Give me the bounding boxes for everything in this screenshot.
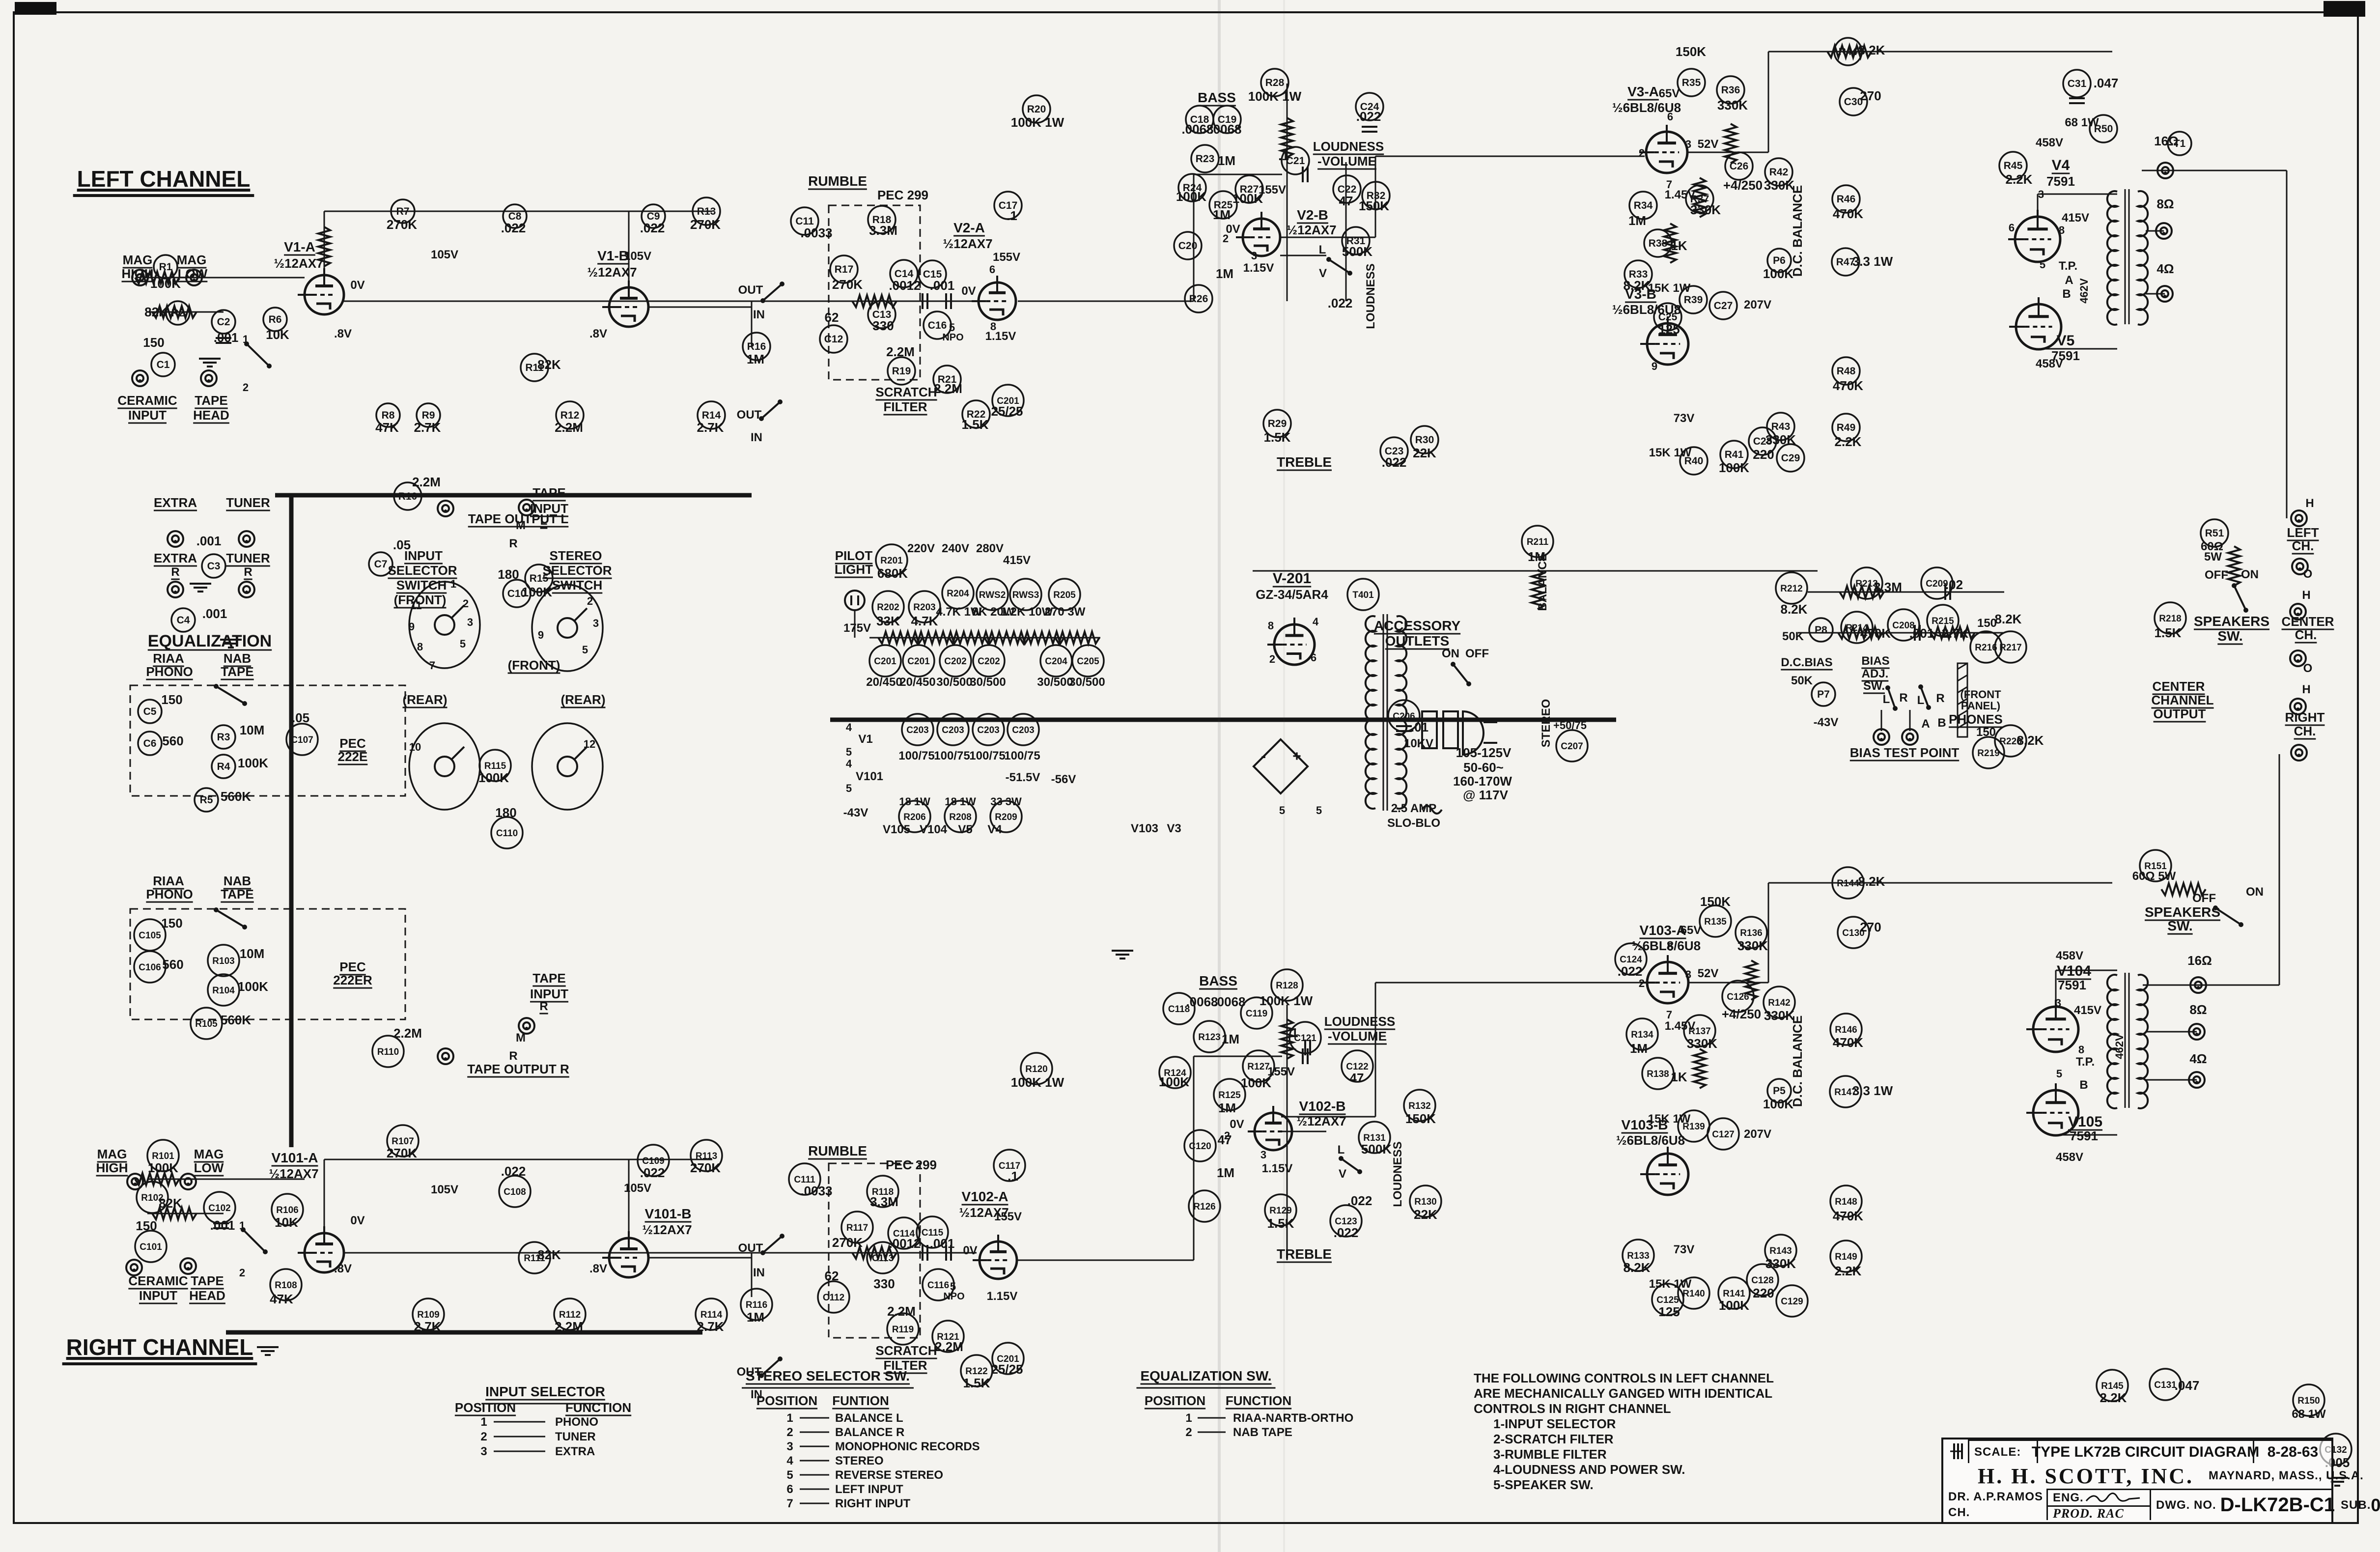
schematic-label: OUT <box>737 408 762 422</box>
legend-row-label: BALANCE L <box>835 1411 903 1425</box>
schematic-label: 160-170W <box>1453 774 1512 789</box>
component-ref: C3 <box>207 561 221 572</box>
component-ref: R111 <box>524 1253 545 1264</box>
component-ref: C114 <box>893 1229 915 1239</box>
legend-row-label: PHONO <box>555 1415 598 1429</box>
schematic-label: TUNER <box>226 495 270 510</box>
schematic-label: V1-A <box>284 239 315 254</box>
jack-symbol <box>2296 659 2299 662</box>
schematic-label: 0V <box>350 1214 364 1227</box>
tube-cathode <box>1660 992 1674 998</box>
legend-row-number: 7 <box>786 1497 793 1510</box>
jack-symbol <box>444 1057 447 1060</box>
schematic-label: .8V <box>589 327 607 340</box>
component-ref: C31 <box>2068 78 2087 89</box>
legend-header: FUNCTION <box>1226 1393 1291 1408</box>
jack-symbol <box>187 1267 190 1270</box>
legend-row-number: 2 <box>1185 1426 1192 1439</box>
schematic-label: .8V <box>589 1262 607 1275</box>
component-ref: C28 <box>1753 436 1772 447</box>
component-ref: R209 <box>995 812 1017 822</box>
component-ref: C122 <box>1346 1062 1368 1072</box>
legend-row-number: 6 <box>786 1483 793 1496</box>
component-ref: C201 <box>997 396 1019 406</box>
component-ref: C205 <box>1077 656 1099 667</box>
tube-cathode <box>2030 250 2044 255</box>
selector-rotor-arm <box>451 605 464 618</box>
legend-row-label: STEREO <box>835 1454 884 1467</box>
engineer-signature <box>2084 1491 2143 1505</box>
schematic-label: LOUDNESS <box>1364 263 1377 329</box>
schematic-label: -43V <box>843 806 868 819</box>
schematic-label: 105V <box>431 1183 458 1196</box>
schematic-label: R <box>509 537 517 550</box>
tube-cathode <box>989 310 1003 315</box>
schematic-label: SPEAKERS <box>2194 614 2269 629</box>
component-ref: C101 <box>140 1242 162 1252</box>
component-ref: C118 <box>1168 1004 1190 1015</box>
tube-cathode <box>316 304 330 310</box>
component-ref: C6 <box>143 738 157 749</box>
schematic-label: 100K <box>1763 1097 1793 1111</box>
scale-label: SCALE: <box>1974 1445 2021 1459</box>
component-ref: P8 <box>1815 624 1827 636</box>
schematic-label: 50K <box>1791 674 1813 687</box>
legend-header: FUNTION <box>832 1393 889 1408</box>
schematic-label: 0V <box>350 279 364 292</box>
component-ref: R135 <box>1704 917 1727 927</box>
schematic-label: 5 <box>846 782 852 794</box>
drawing-title-cell: TYPE LK72B CIRCUIT DIAGRAM <box>2037 1439 2253 1463</box>
component-ref: R128 <box>1276 981 1298 991</box>
schematic-label: 5 <box>846 746 852 758</box>
jack-symbol <box>519 1018 534 1034</box>
schematic-label: NAB <box>224 651 251 666</box>
schematic-label: BIAS <box>1861 654 1889 668</box>
schematic-label: 1M <box>1217 1165 1234 1180</box>
schematic-label: BASS <box>1198 90 1236 105</box>
jack-symbol <box>174 591 177 593</box>
schematic-label: 62 <box>825 310 839 325</box>
schematic-label: -43V <box>1814 716 1839 729</box>
schematic-label: 2.7K <box>697 420 724 435</box>
selector-rotor-arm <box>574 747 587 760</box>
component-ref: R116 <box>746 1300 767 1310</box>
jack-symbol <box>2296 613 2299 616</box>
tube-cathode <box>1265 1140 1279 1146</box>
schematic-label: 6 <box>1667 111 1673 123</box>
component-ref: R34 <box>1634 200 1653 211</box>
switch-symbol <box>761 402 780 419</box>
component-ref: R43 <box>1771 421 1791 432</box>
schematic-label: 240V <box>942 542 969 555</box>
jack-symbol <box>132 370 148 386</box>
schematic-label: TREBLE <box>1277 454 1332 470</box>
schematic-label: 155V <box>994 1210 1022 1223</box>
switch-symbol <box>216 686 245 704</box>
component-ref: C106 <box>139 962 161 973</box>
schematic-label: TAPE <box>221 887 253 902</box>
schematic-label: .047 <box>2094 76 2119 90</box>
component-ref: R205 <box>1053 590 1076 600</box>
schematic-label: 105-125V <box>1456 745 1512 760</box>
schematic-label: R <box>539 1000 548 1013</box>
notes-line: 4-LOUDNESS AND POWER SW. <box>1493 1462 1685 1477</box>
jack-symbol <box>239 582 254 597</box>
jack-symbol <box>239 531 254 547</box>
component-ref: R208 <box>949 812 971 822</box>
schematic-label: SCRATCH <box>875 1343 937 1358</box>
schematic-label: 0V <box>961 284 976 298</box>
component-ref: C11 <box>795 216 814 227</box>
schematic-label: CH. <box>2292 538 2314 553</box>
resistor-symbol <box>1745 960 1757 1000</box>
component-ref: R141 <box>1723 1289 1745 1299</box>
legend-row-label: REVERSE STEREO <box>835 1468 943 1482</box>
schematic-label: M <box>516 519 526 532</box>
component-ref: C203 <box>977 725 999 735</box>
schematic-label: 8.2K <box>1995 612 2022 626</box>
schematic-label: SELECTOR <box>388 563 457 578</box>
accessory-outlet <box>1443 711 1458 748</box>
legend-row-number: 3 <box>786 1440 793 1453</box>
schematic-label: MAG <box>194 1147 224 1161</box>
transformer-winding <box>1366 616 1375 809</box>
phones-pad-hatch <box>1958 663 1967 669</box>
component-ref: R125 <box>1218 1090 1241 1101</box>
jack-symbol <box>2195 1033 2198 1036</box>
schematic-label: 175V <box>843 621 871 635</box>
schematic-label: 5 <box>460 638 466 650</box>
legend-row-label: LEFT INPUT <box>835 1483 903 1496</box>
schematic-label: V4 <box>987 823 1002 836</box>
schematic-label: -VOLUME <box>1317 154 1376 169</box>
schematic-label: 100/75 <box>1004 749 1040 762</box>
component-ref: R201 <box>880 556 903 566</box>
sheet-border <box>14 12 2358 1523</box>
component-ref: R220 <box>1999 736 2021 747</box>
schematic-label: .8V <box>334 327 352 340</box>
component-ref: C19 <box>1218 114 1237 125</box>
jack-symbol <box>180 1174 196 1189</box>
component-ref: T1 <box>2174 138 2186 149</box>
component-ref: R21 <box>938 374 957 385</box>
schematic-label: 15K 1W <box>1648 282 1691 295</box>
component-ref: C120 <box>1189 1141 1211 1152</box>
pilot-lamp <box>845 591 865 610</box>
schematic-label: TAPE <box>532 485 565 500</box>
schematic-label: IN <box>753 1266 765 1279</box>
component-ref: P6 <box>1773 255 1786 266</box>
schematic-label: V3 <box>1167 822 1181 835</box>
company-cell: H. H. SCOTT, INC. MAYNARD, MASS., U.S.A. <box>1943 1463 2331 1489</box>
tube-cathode <box>1660 353 1674 359</box>
jack-symbol <box>1880 738 1883 741</box>
schematic-label: 47 <box>1218 1132 1232 1147</box>
schematic-label: PEC <box>339 959 366 974</box>
component-ref: C23 <box>1385 446 1404 457</box>
schematic-label: 1M <box>747 1310 764 1325</box>
component-ref: C2 <box>217 316 230 328</box>
scale-cell: SCALE: <box>1968 1439 2037 1463</box>
component-ref: R114 <box>700 1310 723 1320</box>
schematic-label: B <box>2079 1078 2088 1092</box>
component-ref: R29 <box>1268 418 1287 429</box>
schematic-label: L <box>1338 1143 1345 1157</box>
component-ref: C201 <box>874 656 896 667</box>
jack-symbol <box>2296 707 2299 710</box>
switch-symbol <box>763 284 782 301</box>
component-ref: R50 <box>2094 123 2113 135</box>
component-ref: R51 <box>2205 528 2224 539</box>
schematic-label: H <box>2302 589 2310 602</box>
component-ref: C109 <box>642 1156 664 1166</box>
jack-symbol <box>2297 519 2300 522</box>
schematic-label: 8 <box>417 641 423 653</box>
schematic-label: EXTRA <box>154 495 197 510</box>
selector-rotor <box>532 585 603 671</box>
schematic-label: LOUDNESS <box>1324 1014 1395 1029</box>
component-ref: R103 <box>212 956 234 966</box>
schematic-label: IN <box>753 308 765 321</box>
schematic-label: ½12AX7 <box>1287 223 1336 237</box>
component-ref: C116 <box>927 1280 949 1291</box>
schematic-label: 2.2M <box>412 475 441 489</box>
legend-row-number: 3 <box>480 1445 487 1458</box>
schematic-label: SCRATCH <box>875 385 937 399</box>
switch-symbol <box>2234 586 2246 610</box>
component-ref: R18 <box>872 214 892 226</box>
schematic-label: NPO <box>942 332 963 343</box>
jack-symbol <box>174 540 177 543</box>
component-ref: R33 <box>1629 269 1648 280</box>
schematic-label: 270K <box>832 277 863 292</box>
notes-line: CONTROLS IN RIGHT CHANNEL <box>1474 1401 1671 1416</box>
switch-symbol <box>1453 664 1469 684</box>
jack-symbol <box>2290 650 2306 666</box>
component-ref: R131 <box>1363 1133 1386 1143</box>
component-ref: C24 <box>1360 101 1379 113</box>
component-ref: RWS3 <box>1012 590 1039 600</box>
component-ref: R122 <box>965 1366 987 1377</box>
schematic-label: -VOLUME <box>1328 1029 1387 1044</box>
legend-row-label: EXTRA <box>555 1445 595 1458</box>
tube-cathode <box>1287 653 1300 659</box>
component-ref: R6 <box>269 314 282 325</box>
component-ref: C10 <box>507 588 527 599</box>
schematic-label: 150K <box>1700 894 1731 909</box>
jack-symbol <box>168 531 183 547</box>
component-ref: R48 <box>1837 366 1856 377</box>
company-name: H. H. SCOTT, INC. <box>1978 1464 2194 1489</box>
dr-cell: DR. A.P.RAMOS <box>1943 1489 2046 1505</box>
component-ref: C4 <box>177 615 190 626</box>
schematic-label: R <box>1899 691 1907 705</box>
jack-symbol <box>245 540 248 543</box>
schematic-label: V4 <box>2052 157 2070 173</box>
schematic-label: PEC 299 <box>886 1157 937 1172</box>
schematic-label: 4 <box>1313 616 1319 628</box>
schematic-label: ½12AX7 <box>642 1222 692 1237</box>
scan-artifact <box>15 2 56 15</box>
schematic-label: D.C.BIAS <box>1781 656 1832 669</box>
schematic-label: EQUALIZATION <box>148 632 272 650</box>
component-ref: C123 <box>1335 1216 1357 1227</box>
schematic-label: OFF <box>1465 647 1489 660</box>
schematic-label: 330 <box>873 1276 895 1291</box>
schematic-label: 105V <box>431 248 458 261</box>
switch-symbol <box>247 344 269 366</box>
component-ref: R28 <box>1265 77 1285 88</box>
schematic-label: 222ER <box>333 973 372 988</box>
schematic-label: L <box>1319 243 1326 256</box>
jack-symbol <box>193 279 196 282</box>
schematic-label: B <box>2062 287 2071 301</box>
component-ref: R36 <box>1721 85 1740 96</box>
component-ref: R146 <box>1835 1025 1857 1035</box>
schematic-label: MAG <box>177 253 207 267</box>
component-ref: C112 <box>823 1293 844 1303</box>
jack-symbol <box>438 501 453 516</box>
drawing-title: TYPE LK72B CIRCUIT DIAGRAM <box>2032 1444 2259 1461</box>
dwg-cell: DWG. NO. D-LK72B-C1 SUB. 0 <box>2150 1489 2331 1520</box>
scan-artifact <box>2324 1 2365 17</box>
schematic-label: 155V <box>993 251 1020 264</box>
jack-symbol <box>180 1258 196 1274</box>
schematic-label: 73V <box>1674 412 1695 425</box>
legend-header: POSITION <box>756 1393 817 1408</box>
schematic-label: 30/500 <box>970 676 1006 689</box>
schematic-label: 8Ω <box>2189 1002 2207 1017</box>
component-ref: R218 <box>2159 614 2181 624</box>
legend-row-number: 4 <box>786 1454 793 1467</box>
schematic-label: CERAMIC <box>117 393 177 408</box>
schematic-label: .001 <box>930 278 955 293</box>
jack-symbol <box>2291 745 2307 761</box>
schematic-label: 2 <box>239 1267 245 1279</box>
schematic-label: SW. <box>2167 918 2192 933</box>
component-ref: R142 <box>1768 998 1790 1008</box>
schematic-label: 3 <box>1260 1149 1266 1161</box>
component-ref: C29 <box>1781 452 1800 464</box>
dwg-number: D-LK72B-C1 <box>2220 1494 2335 1516</box>
schematic-label: EXTRA <box>154 551 197 565</box>
component-ref: C17 <box>999 200 1018 211</box>
component-ref: RWS2 <box>979 590 1006 600</box>
component-ref: R203 <box>913 602 935 613</box>
component-ref: C113 <box>872 1253 894 1264</box>
schematic-label: ADJ. <box>1862 667 1889 680</box>
bridge-rectifier <box>1254 739 1308 793</box>
jack-symbol <box>2292 559 2308 574</box>
schematic-label: SWITCH <box>396 578 447 593</box>
schematic-label: 270K <box>387 217 417 232</box>
component-ref: C15 <box>923 269 942 280</box>
component-ref: C203 <box>942 725 964 735</box>
component-ref: C107 <box>291 735 313 745</box>
schematic-label: 462V <box>2113 1034 2126 1059</box>
schematic-label: 73V <box>1674 1243 1695 1256</box>
schematic-label: 3.3 1W <box>1852 1083 1893 1098</box>
tube-cathode <box>2031 337 2044 343</box>
component-ref: R217 <box>1999 643 2021 653</box>
schematic-label: SW. <box>2217 628 2242 644</box>
component-ref: R27 <box>1240 184 1259 195</box>
schematic-label: 105V <box>624 250 651 263</box>
schematic-label: V103 <box>1131 822 1158 835</box>
component-ref: R120 <box>1025 1064 1047 1074</box>
schematic-label: LOUDNESS <box>1313 139 1384 154</box>
schematic-label: 1M <box>1630 1041 1648 1056</box>
schematic-label: (FRONT) <box>508 658 560 673</box>
component-ref: C202 <box>944 656 966 667</box>
legend-row-number: 1 <box>480 1415 487 1429</box>
component-ref: P5 <box>1773 1085 1786 1097</box>
schematic-label: CENTER <box>2282 614 2334 629</box>
legend-row-label: RIAA-NARTB-ORTHO <box>1233 1411 1353 1425</box>
component-ref: C105 <box>139 931 161 941</box>
schematic-label: .022 <box>1328 296 1353 310</box>
schematic-label: HIGH <box>96 1160 128 1175</box>
schematic-label: B <box>1937 716 1946 730</box>
schematic-label: ON <box>1442 647 1459 660</box>
schematic-label: PEC <box>339 736 366 751</box>
component-ref: R109 <box>417 1310 439 1320</box>
schematic-label: T.P. <box>2059 259 2077 273</box>
schematic-label: HEAD <box>193 408 229 423</box>
component-ref: R136 <box>1740 928 1762 938</box>
logo-cell <box>1943 1439 1968 1463</box>
component-ref: R148 <box>1835 1197 1857 1207</box>
schematic-label: 1.15V <box>1243 261 1274 275</box>
schematic-label: 100/75 <box>969 749 1005 762</box>
component-ref: C16 <box>928 320 947 331</box>
component-ref: R45 <box>2004 160 2023 171</box>
schematic-label: 458V <box>2056 1151 2083 1164</box>
component-ref: R14 <box>702 410 721 421</box>
schematic-label: STEREO <box>1540 699 1553 748</box>
switch-symbol <box>763 1236 782 1253</box>
schematic-label: PHONO <box>146 664 193 679</box>
schematic-label: A <box>1921 717 1930 731</box>
component-ref: R107 <box>392 1136 414 1147</box>
schematic-label: ½12AX7 <box>274 256 323 271</box>
schematic-label: CH. <box>2295 627 2317 642</box>
schematic-label: 2 <box>463 597 469 610</box>
schematic-label: V102-B <box>1299 1099 1346 1114</box>
component-ref: C12 <box>824 334 843 345</box>
schematic-label: 20/450 <box>899 676 935 689</box>
tube-cathode <box>316 1262 330 1268</box>
schematic-label: 8Ω <box>2156 197 2174 211</box>
schematic-label: LIGHT <box>835 562 873 577</box>
component-ref: R133 <box>1627 1251 1649 1261</box>
schematic-label: BASS <box>1199 973 1237 988</box>
schematic-label: H <box>2305 497 2314 510</box>
tube-cathode <box>990 1269 1004 1274</box>
schematic-label: 100K <box>238 979 268 994</box>
legend-row-number: 5 <box>786 1468 793 1482</box>
tube-cathode <box>621 316 635 322</box>
schematic-label: 458V <box>2036 357 2063 370</box>
schematic-label: 150K <box>1676 44 1706 59</box>
drawing-date: 8-28-63 <box>2268 1444 2318 1461</box>
component-ref: C1 <box>157 359 170 370</box>
schematic-label: V <box>1339 1167 1346 1181</box>
schematic-label: 415V <box>2062 211 2089 225</box>
dwg-label: DWG. NO. <box>2156 1498 2216 1512</box>
schematic-label: .001 <box>196 534 222 548</box>
